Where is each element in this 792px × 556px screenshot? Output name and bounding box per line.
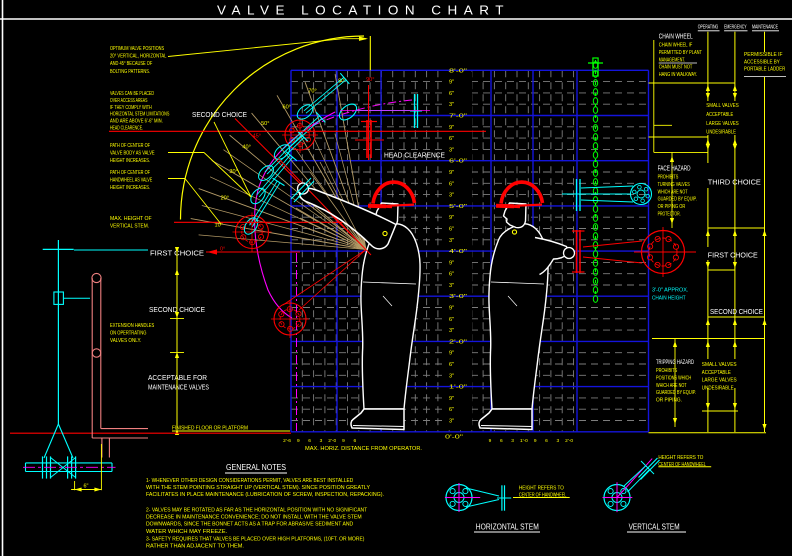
svg-text:HEIGHT INCREASES.: HEIGHT INCREASES. [110, 185, 150, 191]
svg-text:2'-0": 2'-0" [449, 339, 467, 345]
svg-text:3": 3" [449, 102, 454, 108]
svg-text:3": 3" [449, 419, 454, 425]
svg-text:HEAD CLEARENCE.: HEAD CLEARENCE. [110, 126, 143, 132]
svg-text:2'-6: 2'-6 [283, 438, 291, 444]
svg-text:HANG IN WALKWAY.: HANG IN WALKWAY. [659, 72, 697, 78]
svg-text:SECOND CHOICE: SECOND CHOICE [192, 110, 247, 119]
svg-text:OPERATING: OPERATING [698, 25, 719, 31]
svg-text:ON OPERTRATING: ON OPERTRATING [110, 330, 146, 336]
svg-text:6": 6" [449, 136, 454, 142]
svg-text:PERMISSIBLE IF: PERMISSIBLE IF [744, 52, 783, 58]
svg-text:OVER ACCESS AREAS: OVER ACCESS AREAS [110, 98, 148, 104]
svg-text:AND ARE ABOVE 6'-6" MIN.: AND ARE ABOVE 6'-6" MIN. [110, 119, 163, 125]
svg-text:CENTER OF HANDWHEEL: CENTER OF HANDWHEEL [658, 462, 706, 468]
svg-text:6: 6 [500, 438, 503, 444]
svg-text:DECREASE IN MAINTENANCE CONVEN: DECREASE IN MAINTENANCE CONVENIENCE; DO … [146, 515, 362, 521]
svg-text:CHAIN MUST NOT: CHAIN MUST NOT [659, 65, 693, 71]
svg-text:6'-0": 6'-0" [449, 159, 467, 165]
svg-text:2'-0: 2'-0 [565, 438, 573, 444]
svg-text:SMALL VALVES: SMALL VALVES [702, 362, 737, 368]
svg-text:3": 3" [449, 147, 454, 153]
svg-text:UNDESIRABLE: UNDESIRABLE [706, 130, 736, 136]
svg-text:PROHIBITS: PROHIBITS [658, 175, 679, 181]
svg-text:AND 45° BECAUSE OF: AND 45° BECAUSE OF [110, 61, 152, 67]
svg-text:10°: 10° [214, 222, 222, 228]
svg-text:3": 3" [449, 238, 454, 244]
svg-text:PROTECTOR.: PROTECTOR. [658, 212, 681, 218]
svg-text:MANAGEMENT.: MANAGEMENT. [659, 57, 685, 63]
svg-text:9": 9" [449, 170, 454, 176]
svg-text:VALVE BODY AS VALVE: VALVE BODY AS VALVE [110, 151, 155, 157]
svg-text:EMERGENCY: EMERGENCY [724, 25, 747, 31]
svg-text:THIRD CHOICE: THIRD CHOICE [708, 178, 761, 187]
svg-text:FACE HAZARD: FACE HAZARD [658, 166, 691, 173]
svg-text:6": 6" [449, 362, 454, 368]
svg-text:PROHIBITS: PROHIBITS [656, 368, 678, 374]
svg-text:0°: 0° [220, 247, 225, 253]
svg-text:0'-0": 0'-0" [445, 435, 463, 441]
svg-text:WITH THE STEM POINTING STRAIGH: WITH THE STEM POINTING STRAIGHT UP (VERT… [146, 485, 370, 491]
svg-text:PATH OF CENTER OF: PATH OF CENTER OF [110, 170, 150, 176]
svg-text:9": 9" [449, 125, 454, 131]
svg-text:30°: 30° [229, 169, 237, 175]
svg-text:ACCEPTABLE: ACCEPTABLE [702, 370, 731, 376]
svg-text:PATH OF CENTER OF: PATH OF CENTER OF [110, 143, 150, 149]
svg-text:60°: 60° [282, 104, 290, 110]
svg-text:90°: 90° [366, 77, 374, 83]
svg-text:6: 6 [353, 438, 356, 444]
svg-text:OR PIPING.: OR PIPING. [656, 398, 682, 404]
svg-text:HEIGHT REFERS TO: HEIGHT REFERS TO [519, 486, 564, 492]
svg-text:6": 6" [449, 227, 454, 233]
svg-text:5'-0": 5'-0" [449, 204, 467, 210]
svg-text:7'-0": 7'-0" [449, 114, 467, 120]
svg-text:BOLTING PATTERNS.: BOLTING PATTERNS. [110, 69, 150, 75]
svg-text:LARGE VALVES: LARGE VALVES [706, 121, 739, 127]
svg-text:FIRST CHOICE: FIRST CHOICE [708, 251, 758, 260]
svg-text:HORIZONTAL STEM LIMITATIONS: HORIZONTAL STEM LIMITATIONS [110, 112, 170, 118]
svg-text:9: 9 [342, 438, 345, 444]
svg-text:TRIPPING HAZARD: TRIPPING HAZARD [656, 359, 694, 366]
svg-text:CHAIN HEIGHT: CHAIN HEIGHT [652, 296, 686, 302]
svg-text:9: 9 [489, 438, 492, 444]
svg-text:3: 3 [556, 438, 559, 444]
svg-text:1- WHENEVER OTHER DESIGN CONS: 1- WHENEVER OTHER DESIGN CONSIDERATIONS … [146, 478, 353, 484]
svg-text:FACILITATES IN PLACE MAINTENAN: FACILITATES IN PLACE MAINTENANCE (LUBRIC… [146, 492, 384, 498]
svg-text:HEIGHT INCREASES.: HEIGHT INCREASES. [110, 158, 150, 164]
svg-text:3": 3" [449, 328, 454, 334]
svg-text:9": 9" [449, 215, 454, 221]
svg-text:PERMITTED BY PLANT: PERMITTED BY PLANT [659, 50, 703, 56]
svg-text:CHAIN WHEEL: CHAIN WHEEL [659, 34, 693, 41]
svg-text:6": 6" [449, 407, 454, 413]
svg-text:MAX. HEIGHT OF: MAX. HEIGHT OF [110, 216, 152, 222]
svg-text:20° VERTICAL, HORIZONTAL: 20° VERTICAL, HORIZONTAL [110, 54, 166, 60]
svg-text:3": 3" [449, 373, 454, 379]
svg-text:6": 6" [84, 484, 89, 490]
svg-text:HEIGHT REFERS TO: HEIGHT REFERS TO [658, 455, 703, 461]
svg-text:3": 3" [449, 193, 454, 199]
svg-text:9": 9" [449, 306, 454, 312]
svg-text:20°: 20° [221, 195, 229, 201]
svg-text:9": 9" [449, 260, 454, 266]
svg-text:MAINTENANCE VALVES: MAINTENANCE VALVES [148, 383, 209, 392]
svg-text:WHICH ARE NOT: WHICH ARE NOT [656, 383, 687, 389]
svg-text:1'-0": 1'-0" [449, 385, 467, 391]
svg-text:ACCESSIBLE BY: ACCESSIBLE BY [744, 59, 780, 65]
svg-text:HEAD CLEARENCE: HEAD CLEARENCE [384, 151, 445, 160]
svg-text:LARGE VALVES: LARGE VALVES [702, 378, 737, 384]
svg-text:POSITIONS WHICH: POSITIONS WHICH [656, 375, 691, 381]
svg-text:PORTABLE LADDER: PORTABLE LADDER [744, 67, 785, 73]
svg-text:6": 6" [449, 272, 454, 278]
svg-text:IF THEY COMPLY WITH: IF THEY COMPLY WITH [110, 105, 152, 111]
svg-text:9": 9" [449, 351, 454, 357]
svg-text:9": 9" [449, 396, 454, 402]
svg-text:DOWNWARDS, SINCE THE BONNET AC: DOWNWARDS, SINCE THE BONNET ACTS AS A TR… [146, 522, 353, 528]
svg-text:70°: 70° [308, 89, 316, 95]
svg-text:GUARDED BY EQUIP.: GUARDED BY EQUIP. [656, 390, 696, 396]
svg-text:9": 9" [449, 80, 454, 86]
svg-text:SMALL VALVES: SMALL VALVES [706, 103, 739, 109]
svg-text:VALVE LOCATION CHART: VALVE LOCATION CHART [217, 4, 510, 18]
svg-text:8'-0": 8'-0" [449, 68, 467, 74]
svg-text:3'-0" APPROX.: 3'-0" APPROX. [652, 288, 688, 294]
svg-text:ACCEPTABLE: ACCEPTABLE [706, 112, 733, 118]
svg-text:GUARDED BY EQUIP.: GUARDED BY EQUIP. [658, 197, 697, 203]
svg-text:4'-0": 4'-0" [449, 249, 467, 255]
svg-text:VERTICAL STEM: VERTICAL STEM [629, 523, 680, 532]
svg-text:EXTENSION HANDLES: EXTENSION HANDLES [110, 323, 155, 329]
svg-text:VALVES ONLY.: VALVES ONLY. [110, 338, 141, 344]
svg-text:1'-0: 1'-0 [520, 438, 528, 444]
svg-text:2- VALVES MAY BE ROTATED AS F: 2- VALVES MAY BE ROTATED AS FAR AS THE H… [146, 508, 368, 514]
svg-text:HORIZONTAL STEM: HORIZONTAL STEM [476, 523, 539, 532]
svg-text:OPTIMUM VALVE POSITIONS: OPTIMUM VALVE POSITIONS [110, 46, 165, 52]
svg-text:VALVES CAN BE PLACED: VALVES CAN BE PLACED [110, 91, 154, 97]
svg-text:50°: 50° [261, 121, 269, 127]
svg-text:SECOND CHOICE: SECOND CHOICE [710, 307, 763, 316]
svg-text:6: 6 [545, 438, 548, 444]
svg-text:6": 6" [449, 181, 454, 187]
svg-text:WATER WHICH MAY FREEZE.: WATER WHICH MAY FREEZE. [146, 529, 227, 535]
svg-text:3: 3 [320, 438, 323, 444]
svg-text:HANDWHEEL AS VALVE: HANDWHEEL AS VALVE [110, 178, 153, 184]
svg-text:3": 3" [449, 283, 454, 289]
svg-text:9: 9 [534, 438, 537, 444]
svg-text:3: 3 [511, 438, 514, 444]
svg-text:2'-0: 2'-0 [328, 438, 336, 444]
svg-text:9: 9 [297, 438, 300, 444]
svg-text:3- SAFETY REQUIRES THAT VALVE: 3- SAFETY REQUIRES THAT VALVES BE PLACED… [146, 537, 365, 543]
svg-text:CENTER OF HANDWHEEL: CENTER OF HANDWHEEL [519, 493, 567, 499]
svg-text:UNDESIRABLE: UNDESIRABLE [702, 385, 734, 391]
svg-text:CHAIN WHEEL IF: CHAIN WHEEL IF [659, 43, 693, 49]
svg-text:VERTICAL STEM.: VERTICAL STEM. [110, 224, 149, 230]
svg-text:6": 6" [449, 91, 454, 97]
svg-text:MAINTENANCE: MAINTENANCE [752, 25, 778, 31]
svg-text:TURNING VALVES: TURNING VALVES [658, 182, 691, 188]
svg-text:GENERAL NOTES: GENERAL NOTES [226, 463, 286, 472]
svg-text:RATHER THAN ADJACENT TO THEM.: RATHER THAN ADJACENT TO THEM. [146, 544, 244, 550]
svg-text:WHICH ARE NOT: WHICH ARE NOT [658, 189, 688, 195]
svg-text:6": 6" [449, 317, 454, 323]
svg-text:OR PIPING OR: OR PIPING OR [658, 204, 686, 210]
svg-text:MAX. HORIZ. DISTANCE FROM: MAX. HORIZ. DISTANCE FROM OPERATOR. [305, 446, 422, 452]
svg-text:3'-0": 3'-0" [449, 294, 467, 300]
svg-text:6: 6 [308, 438, 311, 444]
svg-text:40°: 40° [242, 145, 250, 151]
svg-text:45°: 45° [253, 134, 261, 140]
